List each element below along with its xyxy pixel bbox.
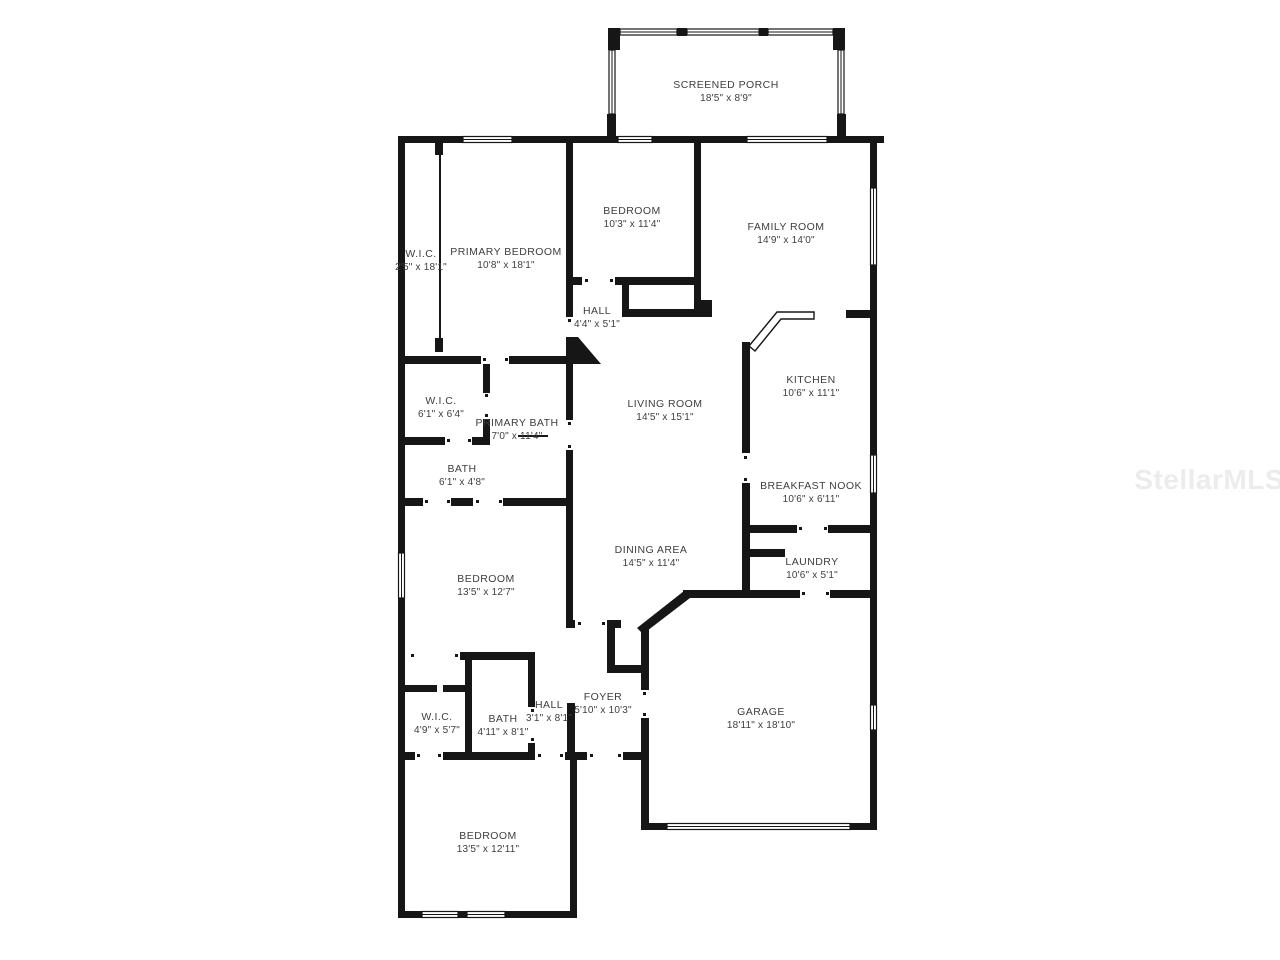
room-name: DINING AREA	[615, 545, 688, 556]
room-label-foyer: FOYER 5'10" x 10'3"	[574, 692, 631, 716]
room-dims: 6'1" x 6'4"	[418, 410, 464, 420]
room-label-bath-main: BATH 4'11" x 8'1"	[478, 714, 529, 738]
room-dims: 14'5" x 15'1"	[628, 413, 703, 423]
room-label-laundry: LAUNDRY 10'6" x 5'1"	[785, 557, 838, 581]
room-label-family-room: FAMILY ROOM 14'9" x 14'0"	[748, 222, 825, 246]
room-label-dining-area: DINING AREA 14'5" x 11'4"	[615, 545, 688, 569]
room-label-primary-bath: PRIMARY BATH 7'0" x 11'4"	[475, 418, 558, 442]
room-dims: 10'8" x 18'1"	[450, 261, 561, 271]
room-name: PRIMARY BATH	[475, 418, 558, 429]
room-dims: 4'4" x 5'1"	[574, 320, 620, 330]
room-dims: 18'5" x 8'9"	[673, 94, 778, 104]
room-label-garage: GARAGE 18'11" x 18'10"	[727, 707, 795, 731]
stellar-mls-watermark: StellarMLS	[1134, 464, 1280, 496]
room-label-bedroom-bottom: BEDROOM 13'5" x 12'11"	[457, 831, 519, 855]
room-name: HALL	[574, 306, 620, 317]
room-name: W.I.C.	[418, 396, 464, 407]
room-dims: 7'0" x 11'4"	[475, 432, 558, 442]
room-name: FAMILY ROOM	[748, 222, 825, 233]
room-label-kitchen: KITCHEN 10'6" x 11'1"	[783, 375, 840, 399]
room-dims: 10'6" x 6'11"	[760, 495, 862, 505]
room-name: LIVING ROOM	[628, 399, 703, 410]
room-dims: 4'9" x 5'7"	[414, 726, 460, 736]
room-dims: 13'5" x 12'7"	[457, 588, 514, 598]
room-label-hall-lower: HALL 3'1" x 8'1"	[526, 700, 572, 724]
room-label-breakfast-nook: BREAKFAST NOOK 10'6" x 6'11"	[760, 481, 862, 505]
room-label-wic-bottom: W.I.C. 4'9" x 5'7"	[414, 712, 460, 736]
floorplan-walls	[0, 0, 1280, 960]
room-name: FOYER	[574, 692, 631, 703]
room-dims: 10'6" x 11'1"	[783, 389, 840, 399]
room-name: BEDROOM	[457, 831, 519, 842]
room-name: W.I.C.	[414, 712, 460, 723]
room-name: PRIMARY BEDROOM	[450, 247, 561, 258]
room-name: BREAKFAST NOOK	[760, 481, 862, 492]
room-dims: 2'5" x 18'1"	[395, 263, 447, 273]
room-name: W.I.C.	[395, 249, 447, 260]
room-dims: 6'1" x 4'8"	[439, 478, 485, 488]
room-dims: 10'3" x 11'4"	[603, 220, 660, 230]
room-dims: 14'5" x 11'4"	[615, 559, 688, 569]
room-name: BATH	[478, 714, 529, 725]
room-name: SCREENED PORCH	[673, 80, 778, 91]
room-label-screened-porch: SCREENED PORCH 18'5" x 8'9"	[673, 80, 778, 104]
room-label-primary-bedroom: PRIMARY BEDROOM 10'8" x 18'1"	[450, 247, 561, 271]
room-dims: 13'5" x 12'11"	[457, 845, 519, 855]
room-label-hall-upper: HALL 4'4" x 5'1"	[574, 306, 620, 330]
room-label-wic-ensuite: W.I.C. 6'1" x 6'4"	[418, 396, 464, 420]
room-name: BEDROOM	[603, 206, 660, 217]
room-dims: 18'11" x 18'10"	[727, 721, 795, 731]
room-label-bath-ensuite: BATH 6'1" x 4'8"	[439, 464, 485, 488]
floorplan-page: SCREENED PORCH 18'5" x 8'9" W.I.C. 2'5" …	[0, 0, 1280, 960]
room-name: BEDROOM	[457, 574, 514, 585]
room-name: KITCHEN	[783, 375, 840, 386]
room-label-wic-primary: W.I.C. 2'5" x 18'1"	[395, 249, 447, 273]
room-name: HALL	[526, 700, 572, 711]
room-dims: 3'1" x 8'1"	[526, 714, 572, 724]
room-name: LAUNDRY	[785, 557, 838, 568]
room-dims: 10'6" x 5'1"	[785, 571, 838, 581]
room-label-bedroom-middle: BEDROOM 13'5" x 12'7"	[457, 574, 514, 598]
room-dims: 5'10" x 10'3"	[574, 706, 631, 716]
room-dims: 4'11" x 8'1"	[478, 728, 529, 738]
room-name: GARAGE	[727, 707, 795, 718]
room-label-bedroom-top: BEDROOM 10'3" x 11'4"	[603, 206, 660, 230]
room-label-living-room: LIVING ROOM 14'5" x 15'1"	[628, 399, 703, 423]
room-dims: 14'9" x 14'0"	[748, 236, 825, 246]
room-name: BATH	[439, 464, 485, 475]
